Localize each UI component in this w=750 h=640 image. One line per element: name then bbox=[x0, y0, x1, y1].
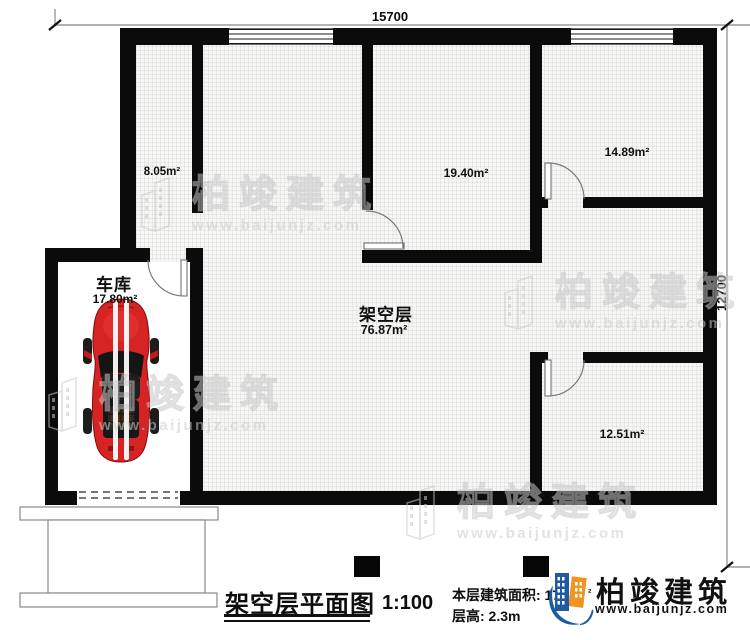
room-area-label: 12.51m² bbox=[600, 427, 645, 441]
company-logo-url: www.baijunjz.com bbox=[595, 602, 728, 616]
company-logo-icon bbox=[546, 566, 594, 630]
stilt-floor-name-label: 架空层 bbox=[359, 301, 413, 326]
dimension-label-right: 12700 bbox=[714, 263, 728, 323]
car-hood-highlight bbox=[103, 311, 139, 341]
apron-step bbox=[20, 593, 217, 607]
column bbox=[354, 556, 380, 577]
watermark-url: www.baijunjz.com bbox=[457, 525, 645, 542]
stilt-floor-area-label: 76.87m² bbox=[361, 323, 408, 337]
wall bbox=[180, 491, 190, 505]
car-top-view bbox=[82, 296, 160, 471]
room-area-label: 8.05m² bbox=[144, 166, 180, 178]
wall bbox=[120, 28, 717, 45]
floor-height-note: 层高: 2.3m bbox=[452, 606, 520, 626]
apron-slab bbox=[48, 520, 205, 593]
plan-scale: 1:100 bbox=[382, 592, 433, 615]
watermark-logo-glyph bbox=[398, 484, 452, 540]
apron-step bbox=[20, 507, 218, 520]
room-area-label: 14.89m² bbox=[605, 145, 650, 159]
wall bbox=[120, 28, 136, 262]
wall bbox=[45, 248, 58, 505]
floor-area-superscript: ² bbox=[588, 588, 591, 599]
wall bbox=[190, 491, 717, 505]
title-underline bbox=[224, 620, 370, 622]
title-underline bbox=[224, 614, 370, 617]
dimension-tick bbox=[721, 20, 733, 30]
car-roof bbox=[102, 374, 140, 400]
company-logo: 柏竣建筑 www.baijunjz.com bbox=[544, 564, 744, 634]
room-area-label: 19.40m² bbox=[444, 166, 489, 180]
watermark: 柏竣建筑 www.baijunjz.com bbox=[398, 484, 645, 542]
building-floor-texture bbox=[136, 45, 703, 491]
window bbox=[571, 28, 673, 45]
wall bbox=[45, 491, 77, 505]
window bbox=[229, 28, 333, 45]
floor-plan-canvas: 15700 12700 8.05m² 19.40m² 14.89m² 12.51… bbox=[0, 0, 750, 640]
driveway-apron bbox=[20, 507, 218, 607]
dimension-label-top: 15700 bbox=[358, 9, 422, 24]
garage-area-label: 17.80m² bbox=[93, 292, 138, 306]
dimension-tick bbox=[49, 20, 61, 30]
wall bbox=[45, 248, 150, 262]
